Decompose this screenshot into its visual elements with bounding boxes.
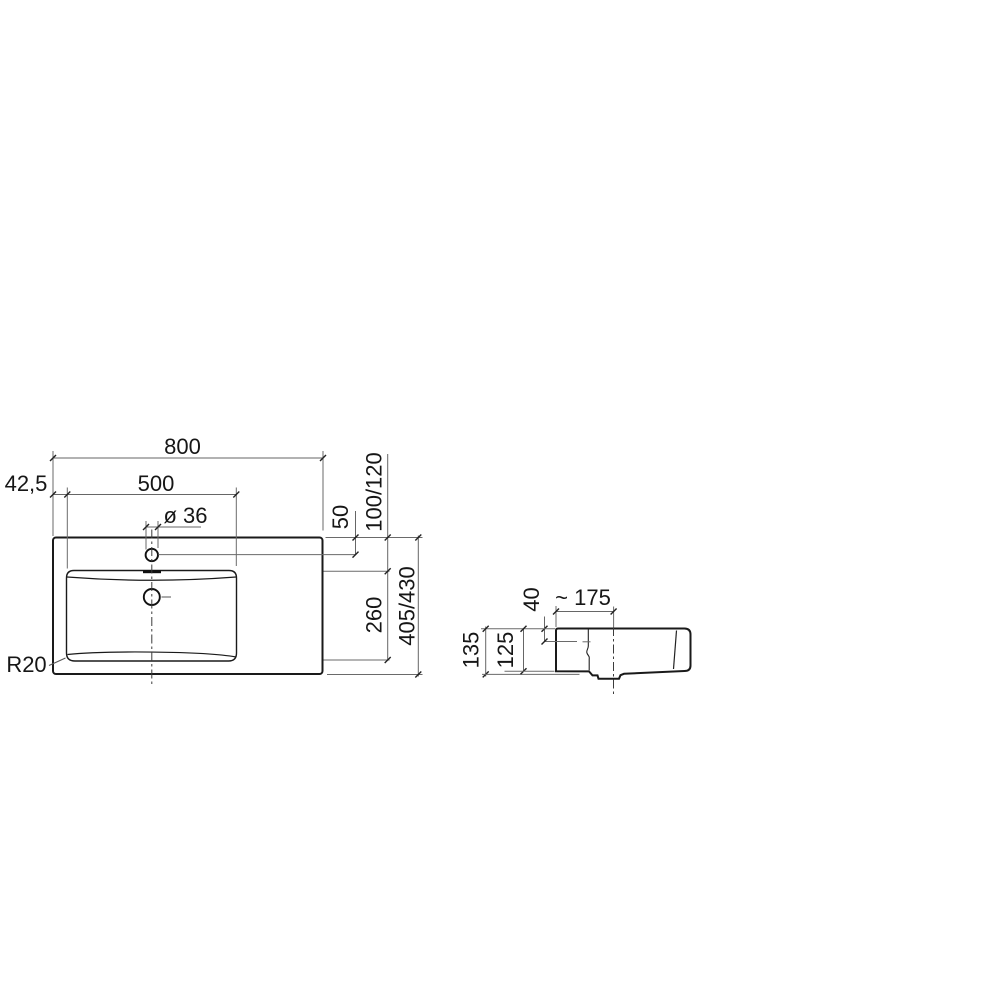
svg-text:40: 40	[519, 587, 544, 611]
svg-text:800: 800	[164, 434, 201, 459]
svg-text:50: 50	[328, 505, 353, 529]
svg-text:260: 260	[362, 597, 387, 634]
svg-text:42,5: 42,5	[5, 471, 48, 496]
svg-text:ø 36: ø 36	[163, 503, 207, 528]
svg-text:100/120: 100/120	[362, 452, 387, 532]
svg-text:135: 135	[459, 632, 484, 669]
svg-text:405/430: 405/430	[395, 566, 420, 646]
svg-text:125: 125	[493, 632, 518, 669]
svg-text:~ 175: ~ 175	[555, 585, 611, 610]
svg-text:500: 500	[138, 471, 175, 496]
svg-text:R20: R20	[6, 652, 46, 677]
